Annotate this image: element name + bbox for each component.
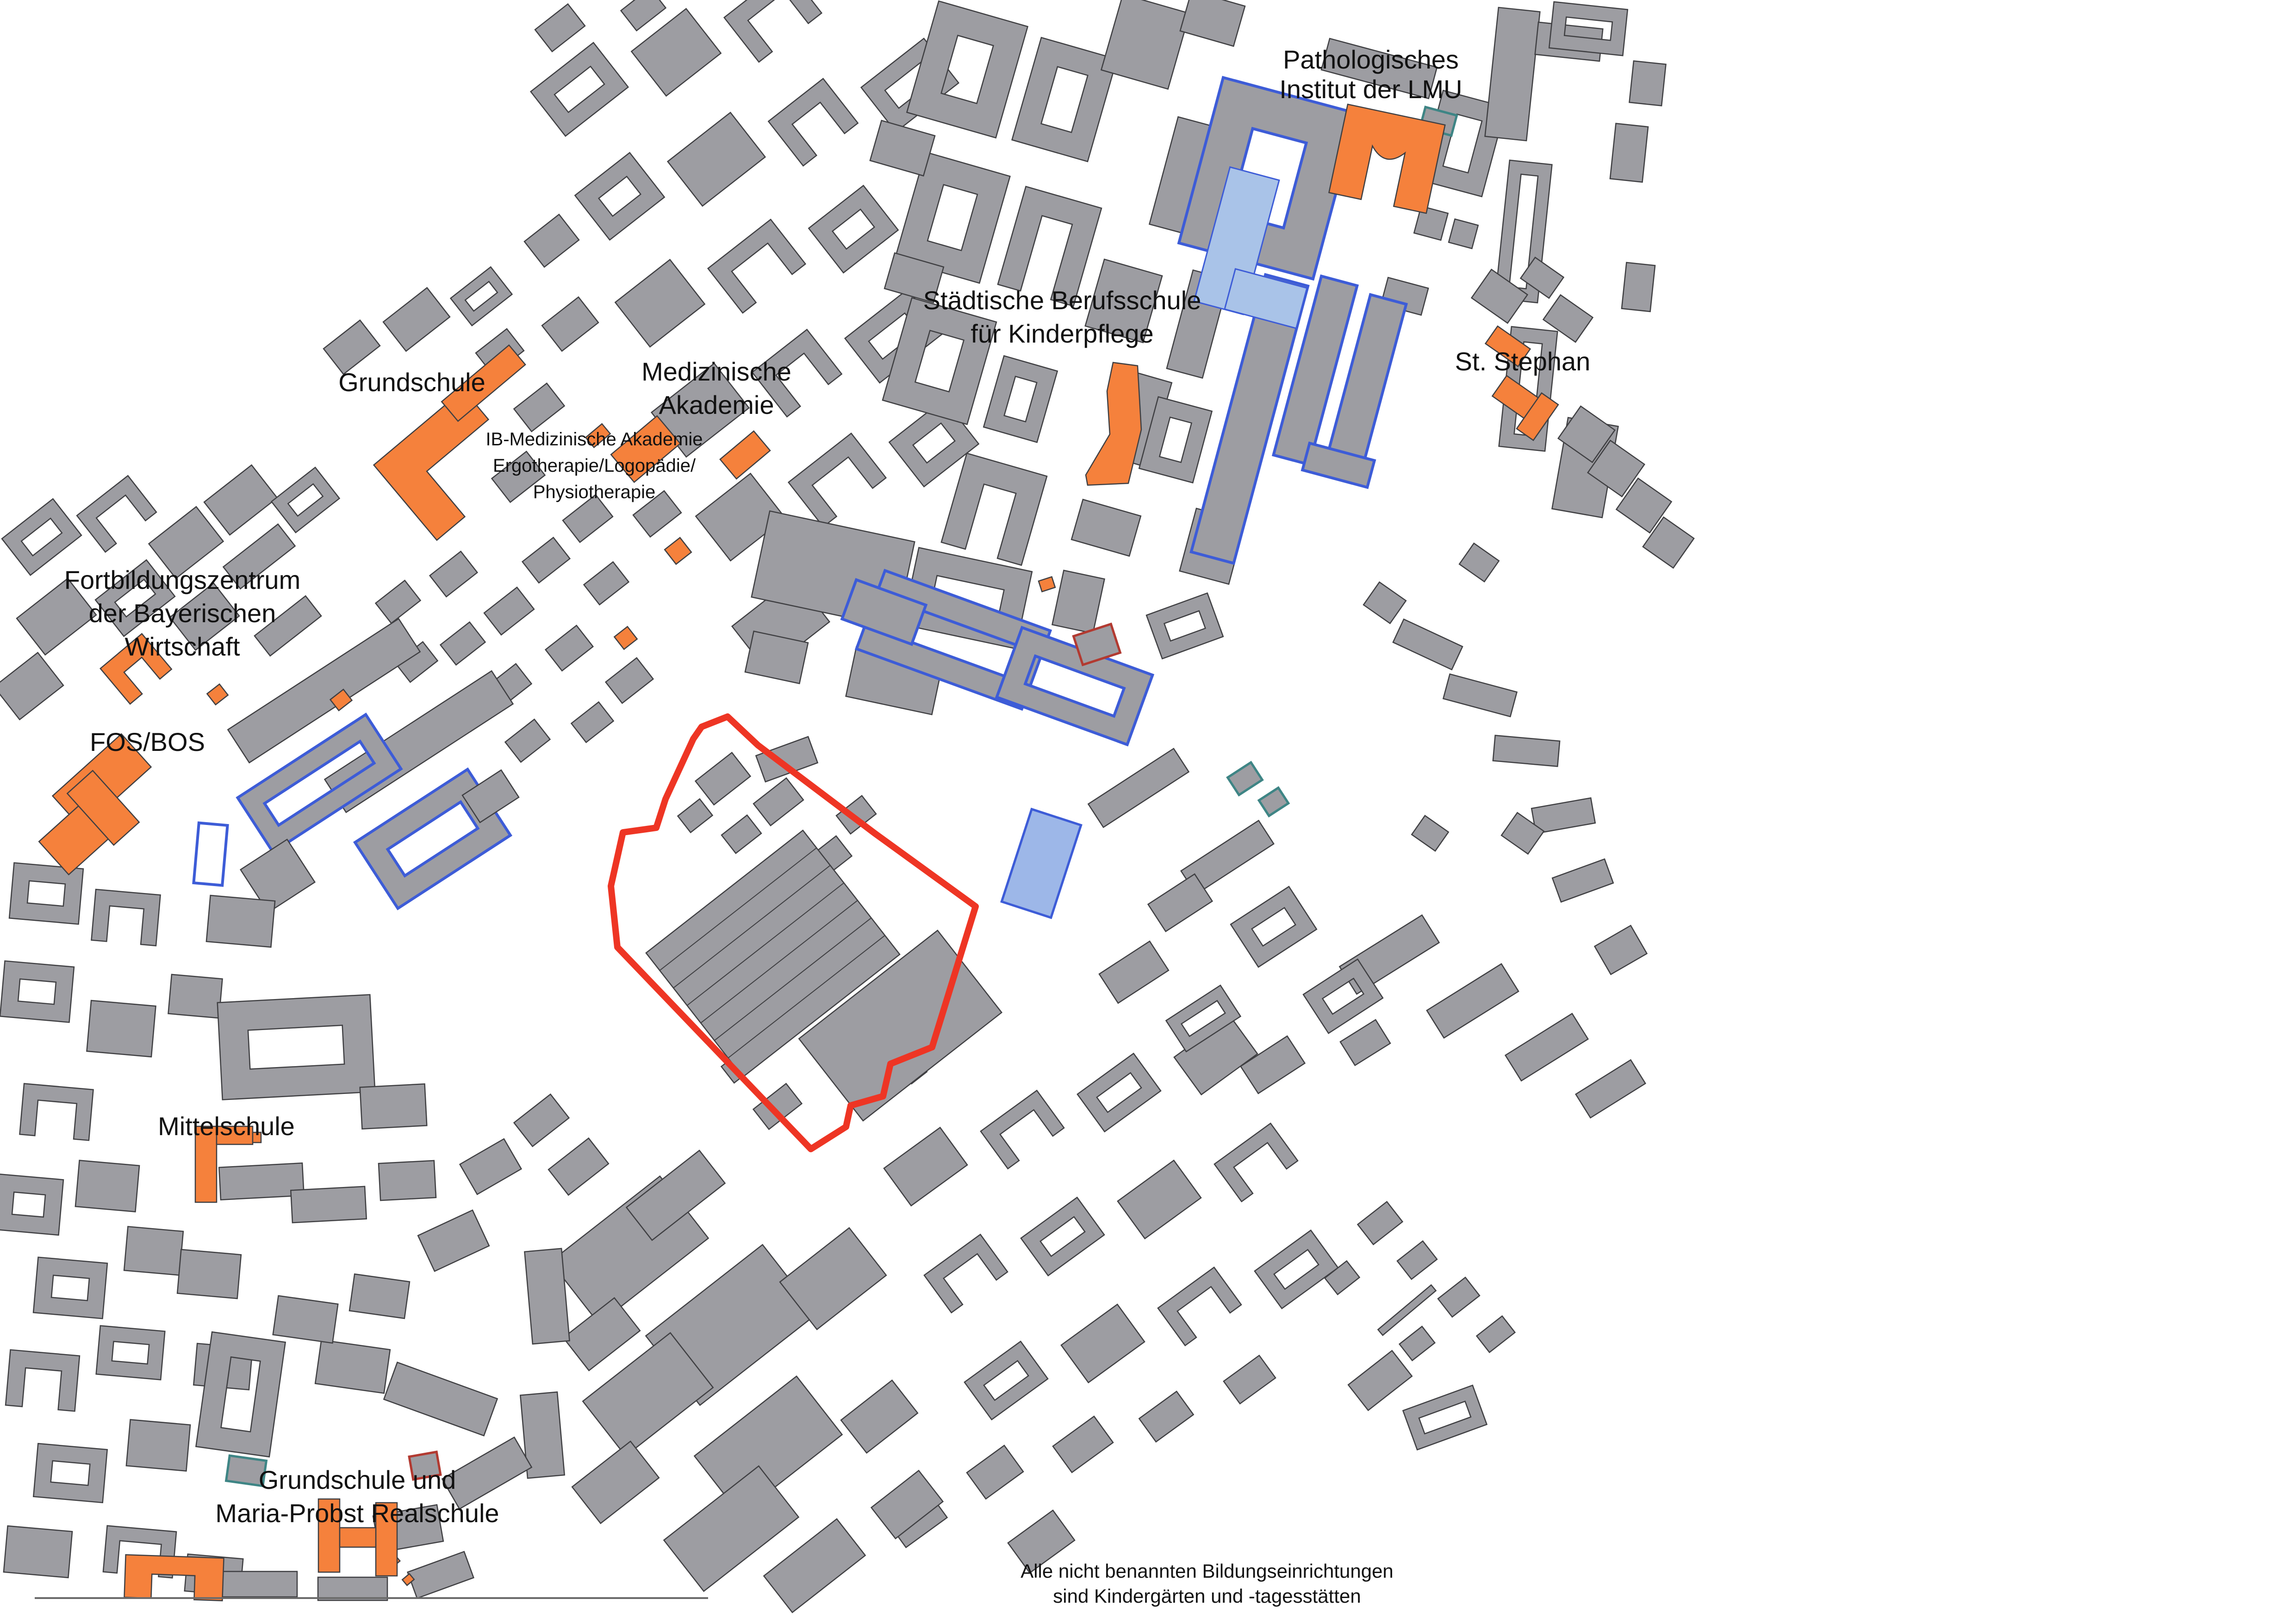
staedtische-berufsschule-building [1086,362,1141,485]
building-footprint [535,4,585,52]
svg-text:Ergotherapie/Logopädie/: Ergotherapie/Logopädie/ [493,456,696,476]
building-footprint [505,719,550,762]
svg-text:FOS/BOS: FOS/BOS [90,727,205,756]
building-footprint [1472,269,1528,323]
map-annotation: Alle nicht benannten Bildungseinrichtung… [1020,1560,1394,1607]
building-footprint [1427,964,1518,1038]
building-footprint [768,79,858,166]
building-footprint [384,1362,497,1436]
building-footprint [1358,1202,1403,1245]
building-footprints [0,0,1694,1612]
building-footprint [563,1298,640,1370]
building-footprint [514,383,564,431]
building-footprint [722,815,761,853]
building-footprint [418,1210,489,1271]
building-footprint [383,288,450,351]
building-footprint [315,1340,390,1393]
document-page: Pathologisches Institut der LMU Städtisc… [0,0,2296,1624]
building-footprint [87,1000,156,1057]
building-footprint [1101,0,1189,89]
building-footprint [1039,577,1055,592]
svg-text:Fortbildungszentrum: Fortbildungszentrum [64,565,300,594]
building-footprint [1531,798,1595,834]
building-footprint [1610,124,1648,182]
building-footprint [524,214,579,267]
building-footprint [1622,262,1655,312]
building-footprint [324,320,380,375]
building-footprint [789,433,886,527]
building-footprint [1077,1053,1161,1131]
svg-text:Wirtschaft: Wirtschaft [125,632,240,661]
building-footprint [1071,500,1141,556]
building-footprint [1348,1350,1412,1410]
building-footprint [665,537,691,564]
building-footprint [204,465,277,535]
building-footprint [724,0,822,62]
building-footprint [809,186,898,273]
building-footprint [1088,749,1188,827]
building-footprint [1012,37,1117,162]
building-footprint [572,1441,659,1523]
building-footprint [870,120,935,176]
building-footprint [19,1084,93,1141]
building-footprint [430,551,478,597]
building-footprint [1506,1013,1588,1081]
svg-text:Physiotherapie: Physiotherapie [533,482,656,502]
building-footprint [753,1084,802,1130]
building-footprint [75,1161,139,1212]
building-footprint [696,753,751,805]
building-footprint [291,1187,366,1223]
building-footprint [924,1234,1008,1312]
building-footprint [1393,619,1462,669]
building-footprint [1053,1416,1113,1472]
svg-text:Städtische Berufsschule: Städtische Berufsschule [923,286,1201,315]
svg-text:Grundschule: Grundschule [338,368,485,397]
building-footprint [1403,1385,1487,1449]
building-footprint [441,622,485,665]
building-footprint [272,468,340,533]
building-footprint [1225,269,1307,328]
building-footprint [1485,7,1540,141]
building-footprint [941,453,1047,565]
building-footprint [531,43,628,136]
svg-text:Mittelschule: Mittelschule [158,1112,295,1141]
building-footprint [451,267,512,326]
label-grundschule: Grundschule [338,368,485,397]
building-footprint [1493,736,1560,767]
building-footprint [0,1174,63,1235]
building-footprint [1443,674,1517,717]
label-fos-bos: FOS/BOS [90,727,205,756]
building-footprint [0,653,63,720]
building-footprint [484,587,534,635]
building-footprint [77,476,156,552]
building-footprint [1146,593,1223,659]
building-footprint [6,1350,80,1412]
building-footprint [0,961,74,1023]
svg-text:Maria-Probst Realschule: Maria-Probst Realschule [215,1499,499,1528]
building-footprint [1231,887,1317,967]
building-footprint [318,1577,387,1600]
building-footprint [193,823,227,886]
building-footprint [615,260,704,347]
building-footprint [1438,1277,1480,1317]
building-footprint [168,974,223,1018]
building-footprint [964,1341,1048,1419]
building-footprint [621,0,666,31]
building-footprint [2,499,81,575]
building-footprint [1099,941,1169,1003]
building-footprint [1449,219,1478,249]
building-footprint [1339,915,1439,994]
building-footprint [1002,809,1081,918]
building-footprint [218,995,375,1100]
building-footprint [126,1420,190,1471]
building-footprint [196,1332,285,1457]
building-footprint [207,684,228,705]
building-footprint [33,1443,107,1503]
building-footprint [997,628,1153,745]
building-footprint [584,562,629,605]
svg-text:IB-Medizinische Akademie: IB-Medizinische Akademie [485,429,703,450]
building-footprint [571,702,613,742]
building-footprint [124,1226,183,1275]
label-mittelschule: Mittelschule [158,1112,295,1141]
building-footprint [884,1127,967,1206]
label-st-stephan: St. Stephan [1455,347,1591,376]
building-footprint [91,889,160,946]
building-footprint [907,1,1027,137]
building-footprint [678,799,713,832]
building-footprint [983,356,1057,443]
building-footprint [1340,1020,1390,1066]
kindergarten-building-group [124,1555,224,1600]
building-footprint [1224,1355,1276,1404]
building-footprint [206,895,275,947]
building-footprint [1052,570,1105,633]
building-footprint [460,1139,522,1194]
building-footprint [1180,0,1245,46]
building-footprint [1118,1160,1201,1238]
building-footprint [360,1084,427,1129]
building-footprint [1477,1316,1515,1353]
building-footprint [1400,1326,1435,1361]
building-footprint [606,658,653,703]
building-footprint [1214,1123,1298,1201]
svg-text:Akademie: Akademie [659,390,774,419]
building-footprint [546,625,593,671]
building-footprint [614,627,637,650]
building-footprint [514,1094,569,1147]
building-footprint [379,1161,436,1200]
building-footprint [1255,1230,1338,1308]
building-footprint [33,1257,107,1319]
building-footprint [1576,1060,1646,1118]
svg-text:Institut der LMU: Institut der LMU [1279,75,1462,104]
building-footprint [1228,762,1263,795]
building-footprint [668,112,765,206]
building-footprint [967,1445,1023,1499]
building-footprint [841,1380,918,1453]
building-footprint [96,1326,165,1380]
building-footprint [542,297,598,351]
building-footprint [1629,61,1666,106]
building-footprint [753,778,803,826]
building-footprint [1412,816,1448,851]
building-footprint [1378,1285,1436,1336]
building-footprint [1139,1392,1193,1442]
building-footprint [756,737,817,781]
building-footprint [1158,1267,1241,1345]
building-footprint [575,153,664,240]
building-footprint [376,581,421,624]
city-map: Pathologisches Institut der LMU Städtisc… [0,0,2296,1624]
building-footprint [408,1552,474,1599]
building-footprint [1259,788,1288,816]
svg-text:Pathologisches: Pathologisches [1283,45,1459,74]
svg-text:sind Kindergärten und -tagesst: sind Kindergärten und -tagesstätten [1053,1585,1361,1607]
building-footprint [1021,1197,1104,1275]
svg-text:Alle nicht benannten Bildungse: Alle nicht benannten Bildungseinrichtung… [1020,1560,1394,1582]
building-footprint [524,1249,569,1344]
building-footprint [1459,543,1499,582]
planning-site [611,717,1002,1149]
building-footprint [349,1274,410,1318]
building-footprint [523,537,570,583]
building-footprint [981,1090,1064,1168]
building-footprint [1552,859,1613,902]
label-pathologisches-institut: Pathologisches Institut der LMU [1279,45,1462,104]
building-footprint [708,219,806,313]
svg-text:Medizinische: Medizinische [641,357,791,386]
building-footprint [273,1296,338,1343]
building-footprint [1595,925,1647,974]
building-footprint [4,1526,72,1578]
building-footprint [177,1249,241,1299]
svg-text:der Bayerischen: der Bayerischen [89,599,276,628]
building-footprint [548,1138,609,1195]
svg-text:Grundschule und: Grundschule und [259,1465,456,1494]
building-footprint [1061,1304,1145,1382]
svg-text:St. Stephan: St. Stephan [1455,347,1591,376]
svg-text:für Kinderpflege: für Kinderpflege [971,319,1153,348]
building-footprint [1363,582,1406,623]
building-footprint [1397,1241,1437,1279]
